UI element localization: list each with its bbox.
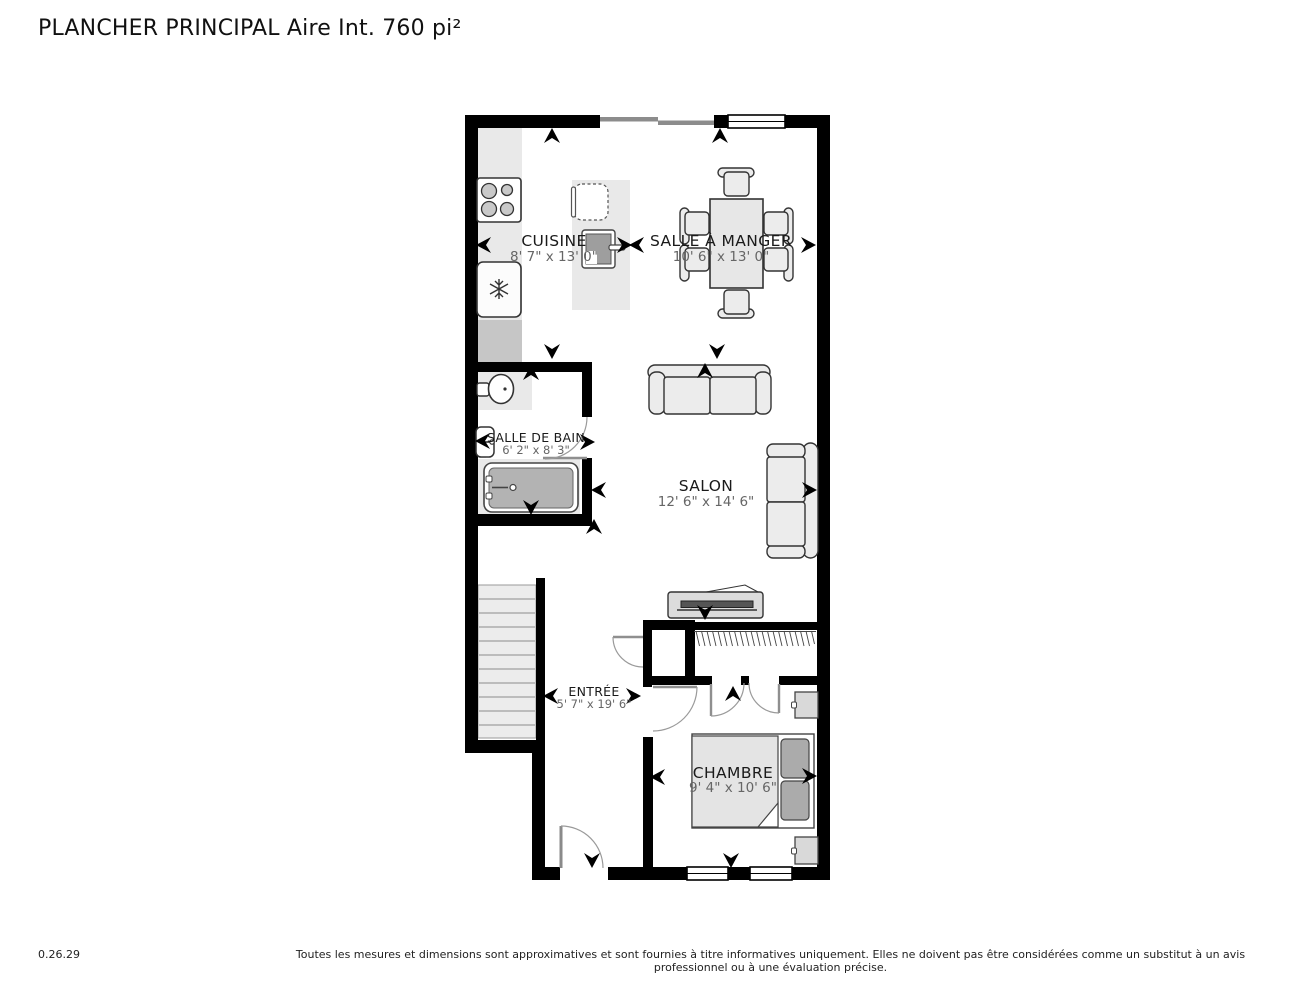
arrow-up-chambre [725, 686, 741, 701]
stove-icon [477, 178, 521, 222]
tv-console [668, 585, 763, 618]
kitchen-counter-end [478, 320, 522, 362]
arrow-down-salle-a-manger [709, 344, 725, 359]
room-dims-salle-de-bain: 6' 2" x 8' 3" [502, 443, 570, 457]
room-dims-salle-a-manger: 10' 6" x 13' 0" [673, 249, 770, 265]
room-dims-cuisine: 8' 7" x 13' 0" [510, 249, 598, 265]
arrow-up-cuisine [544, 128, 560, 143]
front-door [561, 826, 603, 868]
fridge-icon [477, 262, 521, 317]
arrow-down-chambre [723, 853, 739, 868]
nightstand-top [792, 692, 819, 718]
room-dims-salon: 12' 6" x 14' 6" [658, 494, 755, 510]
sofa-right [767, 443, 818, 558]
tv-screen [681, 601, 753, 608]
floorplan-drawing: CUISINE 8' 7" x 13' 0" SALLE À MANGER 10… [0, 0, 1294, 1000]
room-label-cuisine: CUISINE [521, 232, 586, 250]
arrow-right-salle-a-manger [801, 237, 816, 253]
closet-hangers [694, 631, 816, 646]
floorplan-page: PLANCHER PRINCIPAL Aire Int. 760 pi² [0, 0, 1294, 1000]
closet-door-right [749, 683, 779, 713]
pillow-bottom [781, 781, 809, 820]
arrow-down-entree [584, 853, 600, 868]
room-dims-chambre: 9' 4" x 10' 6" [689, 780, 777, 796]
wall-bath-bottom [478, 514, 592, 526]
window-top [728, 115, 785, 128]
window-bottom-right [750, 867, 792, 880]
bathtub-icon [484, 463, 578, 512]
arrow-left-salon [591, 482, 606, 498]
arrow-down-cuisine [544, 344, 560, 359]
room-label-salle-a-manger: SALLE À MANGER [650, 231, 792, 250]
tub-drain [510, 485, 516, 491]
wall-stair-side [536, 578, 545, 740]
patio-rail-1 [600, 117, 658, 122]
room-label-salon: SALON [679, 477, 734, 495]
patio-rail-2 [658, 121, 714, 126]
staircase [478, 585, 536, 738]
wall-bath-top [478, 362, 592, 372]
room-dims-entree: 5' 7" x 19' 6" [557, 697, 632, 711]
wall-chambre-left [643, 737, 653, 880]
island-stool [572, 184, 609, 220]
disclaimer-text: Toutes les mesures et dimensions sont ap… [283, 948, 1258, 974]
version-number: 0.26.29 [38, 948, 80, 961]
bedroom-door [653, 687, 697, 731]
arrow-left-salle-a-manger [629, 237, 644, 253]
entry-closet-door [613, 637, 643, 667]
window-bottom-left [687, 867, 728, 880]
arrow-up-salle-a-manger [712, 128, 728, 143]
nightstand-bottom [792, 837, 819, 864]
wall-closet-top [690, 622, 817, 630]
